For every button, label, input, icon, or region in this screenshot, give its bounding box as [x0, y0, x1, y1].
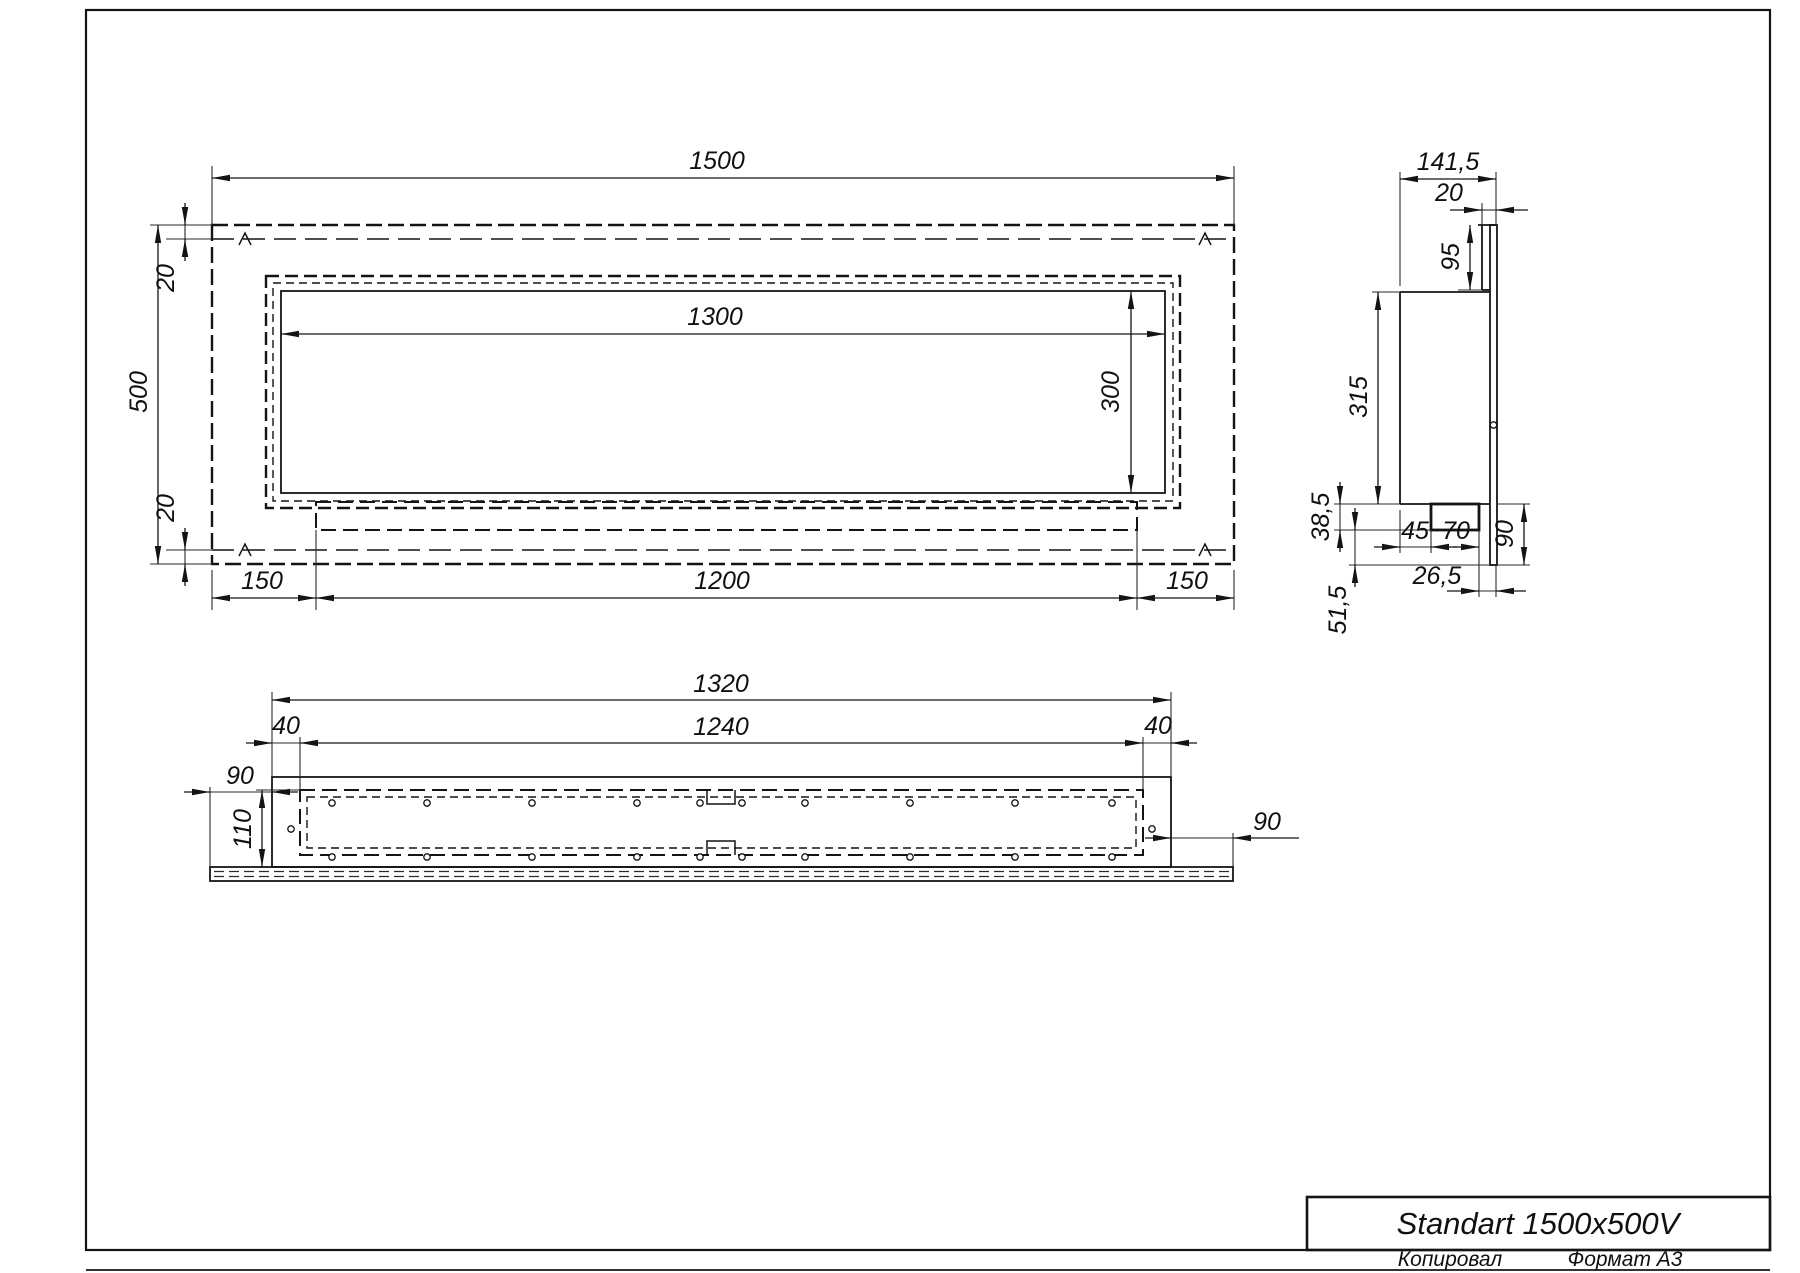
dim-left-end: 40 [272, 712, 300, 740]
dim-left-margin: 150 [241, 567, 283, 595]
footer-copied-label: Копировал [1398, 1248, 1503, 1271]
dim-depth: 141,5 [1417, 148, 1480, 176]
side-hole-right [1149, 826, 1155, 832]
side-hole-left [288, 826, 294, 832]
dim-right-overhang: 90 [1253, 808, 1281, 836]
dim-left-overhang: 90 [226, 762, 254, 790]
footer: Копировал Формат А3 [1398, 1248, 1683, 1271]
front-view: 1500 500 20 20 1300 300 150 1200 150 [125, 147, 1234, 610]
dim-front-top-inset: 20 [152, 264, 180, 293]
burner-tray-hidden [316, 502, 1137, 530]
dim-body-length: 1320 [693, 670, 749, 698]
side-view: 141,5 20 95 315 38,5 45 70 90 26,5 51,5 [1307, 148, 1530, 634]
drawing-title: Standart 1500x500V [1397, 1206, 1683, 1241]
dim-tray-width: 70 [1442, 517, 1470, 545]
dim-front-height: 500 [125, 371, 153, 413]
title-block: Standart 1500x500V [1307, 1197, 1770, 1250]
front-panel-strip [210, 867, 1233, 881]
dim-tray-offset: 45 [1401, 517, 1429, 545]
dim-flange-depth: 20 [1434, 179, 1463, 207]
bottom-view: 1320 1240 40 40 90 110 90 [184, 670, 1299, 881]
mount-hole [1490, 422, 1496, 428]
dim-opening-height: 300 [1097, 371, 1125, 413]
dim-front-width: 1500 [689, 147, 745, 175]
dim-inner-length: 1240 [693, 713, 749, 741]
drawing-sheet: 1500 500 20 20 1300 300 150 1200 150 [0, 0, 1800, 1273]
dim-bottom-depth: 110 [229, 809, 257, 849]
dim-bottom-offset: 51,5 [1324, 586, 1352, 635]
dim-rear-offset: 26,5 [1412, 562, 1462, 590]
border-rect [86, 10, 1770, 1250]
footer-format-label: Формат А3 [1568, 1248, 1683, 1271]
dim-opening-width: 1300 [687, 303, 743, 331]
dim-tray-height: 38,5 [1307, 493, 1335, 542]
dim-right-margin: 150 [1166, 567, 1208, 595]
dim-right-end: 40 [1144, 712, 1172, 740]
dim-burner-width: 1200 [694, 567, 750, 595]
screw-holes-top [329, 800, 1115, 806]
dim-flange-height: 95 [1437, 243, 1465, 271]
back-plate [1490, 225, 1497, 565]
drawing-frame [86, 10, 1770, 1270]
dim-body-height: 315 [1345, 376, 1373, 418]
dim-plate-extension: 90 [1491, 520, 1519, 548]
drawing-canvas: 1500 500 20 20 1300 300 150 1200 150 [0, 0, 1800, 1273]
dim-front-bottom-inset: 20 [152, 494, 180, 523]
